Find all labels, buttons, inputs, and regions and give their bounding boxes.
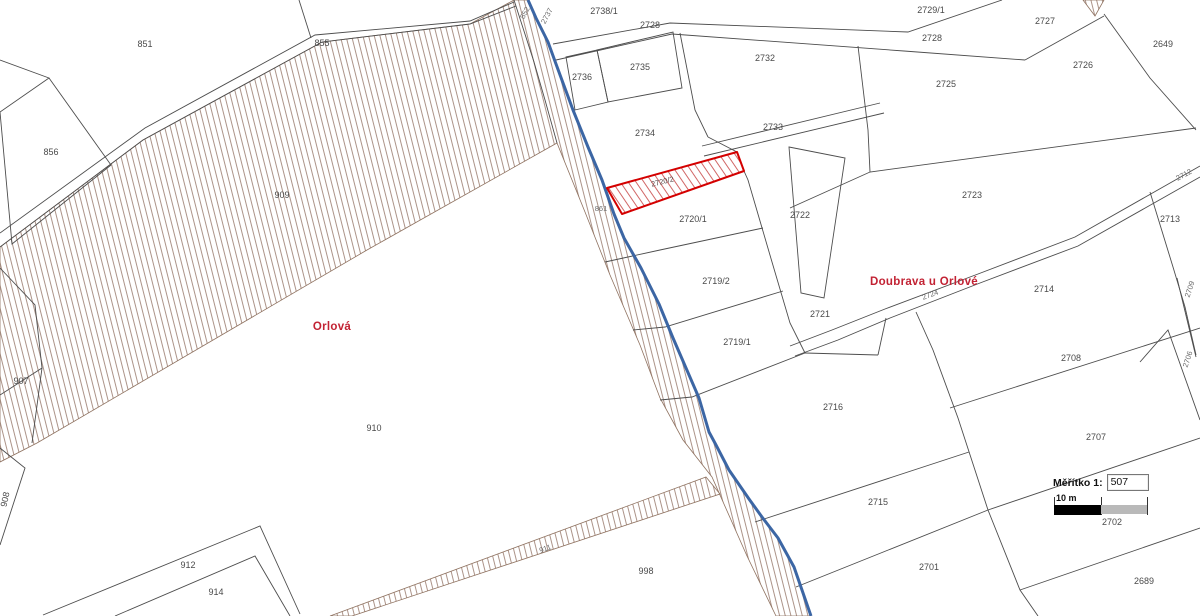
parcel-label-2708: 2708 bbox=[1061, 353, 1081, 363]
parcel-label-2689: 2689 bbox=[1134, 576, 1154, 586]
parcel-label-2649: 2649 bbox=[1153, 39, 1173, 49]
parcel-label-2733: 2733 bbox=[763, 122, 783, 132]
parcel-label-2736: 2736 bbox=[572, 72, 592, 82]
city-label-orlova: Orlová bbox=[313, 321, 351, 333]
hatched-band-909 bbox=[0, 0, 811, 616]
parcel-label-2712: 2712 bbox=[1174, 167, 1193, 183]
city-label-doubrava: Doubrava u Orlové bbox=[870, 276, 978, 288]
parcel-label-914: 914 bbox=[208, 587, 223, 597]
parcel-label-2716: 2716 bbox=[823, 402, 843, 412]
parcel-label-2735: 2735 bbox=[630, 62, 650, 72]
parcel-label-2702: 2702 bbox=[1102, 517, 1122, 527]
parcel-label-2728: 2728 bbox=[922, 33, 942, 43]
scale-tick bbox=[1147, 497, 1148, 515]
cadastral-map-view[interactable]: 8518558569099079089109129149118618522737… bbox=[0, 0, 1200, 616]
scale-input[interactable]: 507 bbox=[1107, 474, 1149, 491]
parcel-label-2723: 2723 bbox=[962, 190, 982, 200]
parcel-label-907: 907 bbox=[13, 376, 28, 386]
parcel-label-2720/1: 2720/1 bbox=[679, 214, 707, 224]
parcel-label-2721: 2721 bbox=[810, 309, 830, 319]
parcel-label-2738/1: 2738/1 bbox=[590, 6, 618, 16]
parcel-label-851: 851 bbox=[137, 39, 152, 49]
parcel-label-2719/1: 2719/1 bbox=[723, 337, 751, 347]
scale-bar-black-segment bbox=[1054, 505, 1101, 515]
scale-widget: Měřítko 1: 507 10 m bbox=[1053, 474, 1163, 516]
parcel-label-2725: 2725 bbox=[936, 79, 956, 89]
parcel-label-998: 998 bbox=[638, 566, 653, 576]
scale-label: Měřítko 1: bbox=[1053, 477, 1103, 489]
parcel-label-2719/2: 2719/2 bbox=[702, 276, 730, 286]
parcel-label-2726: 2726 bbox=[1073, 60, 1093, 70]
cadastre-boundary-line bbox=[528, 0, 811, 616]
parcel-label-910: 910 bbox=[366, 423, 381, 433]
parcel-label-909: 909 bbox=[274, 190, 289, 200]
parcel-label-2732: 2732 bbox=[755, 53, 775, 63]
selected-parcel-2720-2[interactable] bbox=[607, 152, 744, 214]
scale-bar-label: 10 m bbox=[1056, 493, 1077, 503]
parcel-label-908: 908 bbox=[0, 491, 12, 508]
parcel-label-912: 912 bbox=[180, 560, 195, 570]
scale-bar-gray-segment bbox=[1101, 505, 1147, 514]
hatched-triangle bbox=[1083, 0, 1104, 16]
hatched-strip-911 bbox=[330, 477, 720, 616]
parcel-label-2734: 2734 bbox=[635, 128, 655, 138]
parcel-label-2727: 2727 bbox=[1035, 16, 1055, 26]
parcel-label-2707: 2707 bbox=[1086, 432, 1106, 442]
scale-bar: 10 m bbox=[1053, 494, 1149, 516]
map-canvas[interactable]: 8518558569099079089109129149118618522737… bbox=[0, 0, 1200, 616]
parcel-label-2729/1: 2729/1 bbox=[917, 5, 945, 15]
parcel-label-2737: 2737 bbox=[539, 6, 555, 25]
parcel-label-2706: 2706 bbox=[1181, 350, 1195, 369]
parcel-label-2722: 2722 bbox=[790, 210, 810, 220]
parcel-label-855: 855 bbox=[314, 38, 329, 48]
parcel-label-861: 861 bbox=[595, 204, 608, 213]
parcel-label-2715: 2715 bbox=[868, 497, 888, 507]
parcel-label-2709: 2709 bbox=[1183, 280, 1197, 299]
parcel-label-2713: 2713 bbox=[1160, 214, 1180, 224]
parcel-label-856: 856 bbox=[43, 147, 58, 157]
parcel-label-2701: 2701 bbox=[919, 562, 939, 572]
parcel-label-2714: 2714 bbox=[1034, 284, 1054, 294]
parcel-label-2728: 2728 bbox=[640, 20, 660, 30]
